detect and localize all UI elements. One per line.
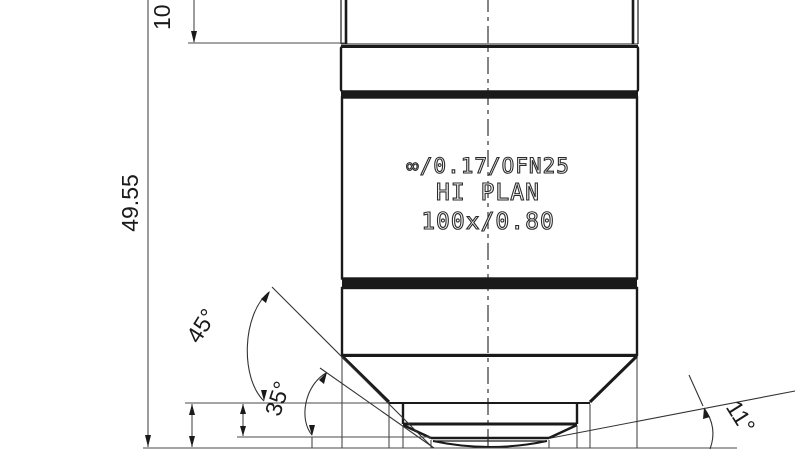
lower-barrel [342, 288, 637, 355]
angle-35-label: 35° [260, 378, 295, 419]
angle-45-arc [247, 292, 269, 401]
arrow-small-mid-up [240, 404, 246, 414]
front-lens-curve [433, 441, 547, 447]
angle-45-ray [272, 287, 433, 448]
angle-35-ray [320, 368, 434, 448]
engraving-series-line: HI PLAN [436, 180, 540, 206]
angle-11-ray [551, 391, 795, 438]
upper-collar [341, 47, 638, 92]
technical-drawing-canvas: ∞/0.17/OFN25 HI PLAN 100x/0.80 [0, 0, 800, 450]
arrow-small-left-down [189, 436, 195, 447]
arrow-dim10-down [191, 31, 197, 43]
engraving-magnification-line: 100x/0.80 [421, 209, 555, 235]
arrow-small-left-up [189, 404, 195, 415]
arrow-35-lower [309, 425, 315, 436]
arrow-small-mid-down [240, 426, 246, 436]
arrow-35-upper [319, 372, 327, 384]
knurl-groove-lower [342, 278, 637, 288]
nose-cone-left [342, 356, 389, 402]
angle-45-label: 45° [181, 304, 221, 347]
angle-11-label: 11° [721, 396, 761, 438]
dim-top-section-label: 10 [149, 4, 175, 30]
angle-11-leader [689, 375, 703, 406]
dim-overall-height-label: 49.55 [117, 174, 143, 232]
nose-cone-right [590, 356, 637, 402]
engraved-label: ∞/0.17/OFN25 HI PLAN 100x/0.80 [406, 154, 570, 235]
engraving-spec-line: ∞/0.17/OFN25 [406, 154, 570, 178]
arrow-45-upper [261, 291, 270, 303]
arrow-dim4955-down [145, 435, 151, 447]
objective-drawing: ∞/0.17/OFN25 HI PLAN 100x/0.80 [0, 0, 800, 450]
